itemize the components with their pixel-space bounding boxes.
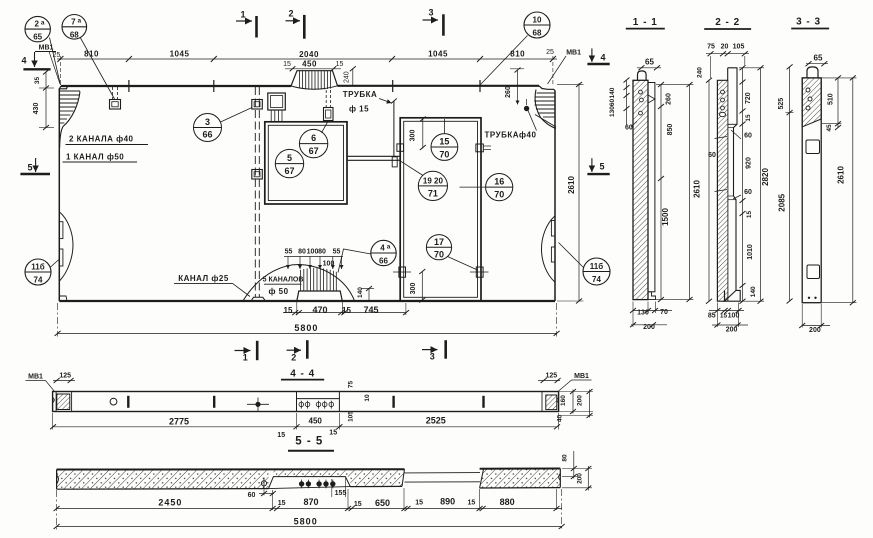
svg-text:70: 70 [439, 150, 449, 160]
svg-text:60: 60 [609, 99, 616, 107]
svg-text:2: 2 [34, 20, 39, 29]
svg-text:850: 850 [667, 124, 674, 136]
svg-text:15: 15 [278, 500, 286, 507]
svg-text:15: 15 [720, 312, 728, 319]
svg-text:а: а [387, 244, 391, 251]
svg-text:200: 200 [576, 473, 583, 484]
svg-text:67: 67 [284, 166, 294, 176]
svg-text:80: 80 [298, 249, 306, 256]
svg-text:240: 240 [697, 67, 704, 78]
svg-text:140: 140 [609, 87, 616, 98]
svg-text:100: 100 [728, 312, 740, 319]
svg-text:2: 2 [291, 353, 296, 363]
svg-text:15: 15 [283, 61, 291, 68]
svg-text:60: 60 [708, 152, 716, 159]
svg-text:4: 4 [601, 53, 606, 63]
svg-text:55: 55 [285, 249, 293, 256]
svg-text:15: 15 [354, 501, 362, 508]
svg-text:200: 200 [726, 326, 738, 333]
svg-text:2610: 2610 [693, 180, 702, 198]
svg-text:15: 15 [439, 137, 449, 147]
svg-text:2610: 2610 [567, 176, 576, 194]
svg-text:2085: 2085 [778, 193, 787, 211]
svg-text:470: 470 [312, 305, 327, 315]
svg-text:125: 125 [545, 372, 557, 379]
svg-text:200: 200 [577, 395, 584, 406]
svg-text:200: 200 [643, 324, 655, 331]
svg-text:140: 140 [357, 287, 364, 298]
svg-text:20: 20 [721, 44, 729, 51]
svg-text:19 20: 19 20 [423, 176, 444, 185]
svg-text:45: 45 [826, 124, 833, 132]
svg-text:МВ1: МВ1 [566, 50, 581, 57]
svg-text:68: 68 [533, 29, 542, 38]
svg-text:1 - 1: 1 - 1 [633, 17, 658, 28]
svg-text:870: 870 [303, 497, 318, 507]
svg-text:60: 60 [744, 189, 752, 196]
svg-text:10: 10 [364, 394, 371, 402]
svg-text:11б: 11б [590, 262, 603, 271]
svg-text:300: 300 [410, 130, 417, 142]
svg-text:5: 5 [27, 163, 32, 173]
svg-text:1010: 1010 [747, 244, 754, 260]
svg-text:КАНАЛ ф25: КАНАЛ ф25 [178, 274, 229, 283]
svg-text:2: 2 [288, 9, 293, 19]
svg-text:40: 40 [556, 415, 563, 423]
svg-text:1045: 1045 [170, 50, 190, 59]
svg-text:125: 125 [59, 373, 71, 380]
svg-text:2 - 2: 2 - 2 [715, 17, 740, 28]
svg-text:100: 100 [307, 249, 319, 256]
svg-text:55: 55 [333, 249, 341, 256]
svg-text:15: 15 [746, 211, 753, 219]
svg-text:60: 60 [744, 133, 752, 140]
svg-text:720: 720 [745, 92, 752, 104]
svg-text:6: 6 [311, 133, 316, 143]
svg-text:200: 200 [809, 327, 821, 334]
svg-text:3: 3 [205, 117, 210, 127]
svg-text:5800: 5800 [294, 323, 318, 333]
svg-text:2610: 2610 [837, 166, 846, 184]
svg-text:65: 65 [33, 33, 42, 42]
svg-text:920: 920 [745, 157, 752, 169]
svg-text:67: 67 [309, 146, 319, 156]
svg-text:85: 85 [708, 312, 716, 319]
svg-text:745: 745 [363, 305, 378, 315]
svg-text:74: 74 [592, 275, 601, 284]
svg-text:66: 66 [202, 130, 212, 140]
svg-text:70: 70 [660, 309, 668, 316]
svg-text:МВ1: МВ1 [574, 373, 589, 380]
svg-text:140: 140 [750, 286, 757, 297]
svg-text:15: 15 [284, 306, 293, 315]
svg-text:4: 4 [380, 244, 385, 253]
svg-text:65: 65 [645, 58, 654, 67]
svg-text:68: 68 [70, 30, 79, 39]
svg-text:3 - 3: 3 - 3 [796, 17, 821, 28]
svg-text:5: 5 [287, 153, 292, 163]
svg-text:2820: 2820 [761, 168, 770, 186]
svg-text:15: 15 [342, 306, 351, 315]
svg-text:510: 510 [828, 93, 835, 105]
svg-text:3: 3 [430, 352, 435, 362]
svg-text:15: 15 [329, 430, 337, 437]
svg-text:15: 15 [468, 500, 476, 507]
svg-text:130: 130 [637, 310, 649, 317]
svg-text:ТРУБКА: ТРУБКА [343, 90, 378, 99]
svg-text:15: 15 [336, 61, 344, 68]
svg-text:10: 10 [533, 16, 542, 25]
svg-text:ф 50: ф 50 [268, 287, 288, 296]
svg-text:5 КАНАЛОВ: 5 КАНАЛОВ [263, 277, 304, 284]
svg-text:3: 3 [428, 8, 433, 18]
svg-text:17: 17 [434, 237, 444, 247]
svg-text:1: 1 [240, 10, 245, 20]
svg-text:160: 160 [560, 395, 567, 406]
svg-text:525: 525 [778, 98, 785, 110]
svg-text:70: 70 [494, 190, 504, 200]
svg-text:80: 80 [318, 249, 326, 256]
svg-text:16: 16 [494, 177, 504, 187]
svg-text:130: 130 [609, 106, 616, 117]
svg-text:1045: 1045 [428, 50, 448, 59]
svg-text:5800: 5800 [294, 517, 318, 527]
svg-text:2 КАНАЛА ф40: 2 КАНАЛА ф40 [69, 135, 134, 144]
svg-text:15: 15 [745, 114, 752, 122]
svg-text:1: 1 [243, 353, 248, 363]
svg-text:75: 75 [347, 381, 354, 389]
svg-text:65: 65 [814, 54, 823, 63]
svg-text:5 - 5: 5 - 5 [295, 436, 323, 448]
svg-text:7: 7 [71, 17, 76, 26]
svg-text:а: а [41, 20, 45, 27]
svg-text:105: 105 [347, 411, 354, 422]
svg-text:4: 4 [21, 56, 26, 66]
svg-text:155: 155 [335, 490, 347, 497]
svg-text:1500: 1500 [661, 208, 670, 226]
svg-text:15: 15 [277, 432, 285, 439]
svg-text:430: 430 [33, 103, 40, 115]
svg-text:300: 300 [410, 283, 417, 295]
svg-text:880: 880 [500, 497, 515, 507]
svg-text:70: 70 [434, 249, 444, 259]
svg-text:260: 260 [666, 93, 673, 105]
svg-text:240: 240 [344, 71, 351, 83]
svg-text:5: 5 [600, 162, 605, 172]
svg-text:11б: 11б [31, 263, 44, 272]
svg-text:1 КАНАЛ ф50: 1 КАНАЛ ф50 [66, 153, 124, 162]
svg-text:74: 74 [34, 276, 43, 285]
svg-text:260: 260 [505, 86, 512, 98]
svg-text:2775: 2775 [169, 417, 189, 427]
svg-text:ф 15: ф 15 [349, 105, 369, 114]
svg-text:650: 650 [375, 498, 390, 508]
svg-text:60: 60 [248, 492, 256, 499]
svg-text:2450: 2450 [158, 498, 182, 508]
svg-text:890: 890 [440, 497, 455, 507]
svg-text:а: а [77, 17, 81, 24]
svg-text:35: 35 [34, 77, 41, 85]
svg-text:66: 66 [379, 257, 388, 266]
svg-text:450: 450 [309, 417, 323, 426]
svg-text:МВ1: МВ1 [28, 374, 43, 381]
svg-text:2525: 2525 [426, 416, 446, 426]
svg-text:105: 105 [733, 44, 745, 51]
svg-text:450: 450 [302, 60, 317, 69]
svg-text:2040: 2040 [299, 50, 319, 59]
svg-text:25: 25 [546, 49, 554, 56]
svg-text:ТРУБКАф40: ТРУБКАф40 [485, 131, 537, 140]
svg-text:71: 71 [428, 189, 438, 199]
svg-text:80: 80 [562, 454, 569, 462]
svg-text:75: 75 [707, 44, 715, 51]
svg-text:15: 15 [415, 500, 423, 507]
svg-text:4 - 4: 4 - 4 [290, 369, 315, 380]
